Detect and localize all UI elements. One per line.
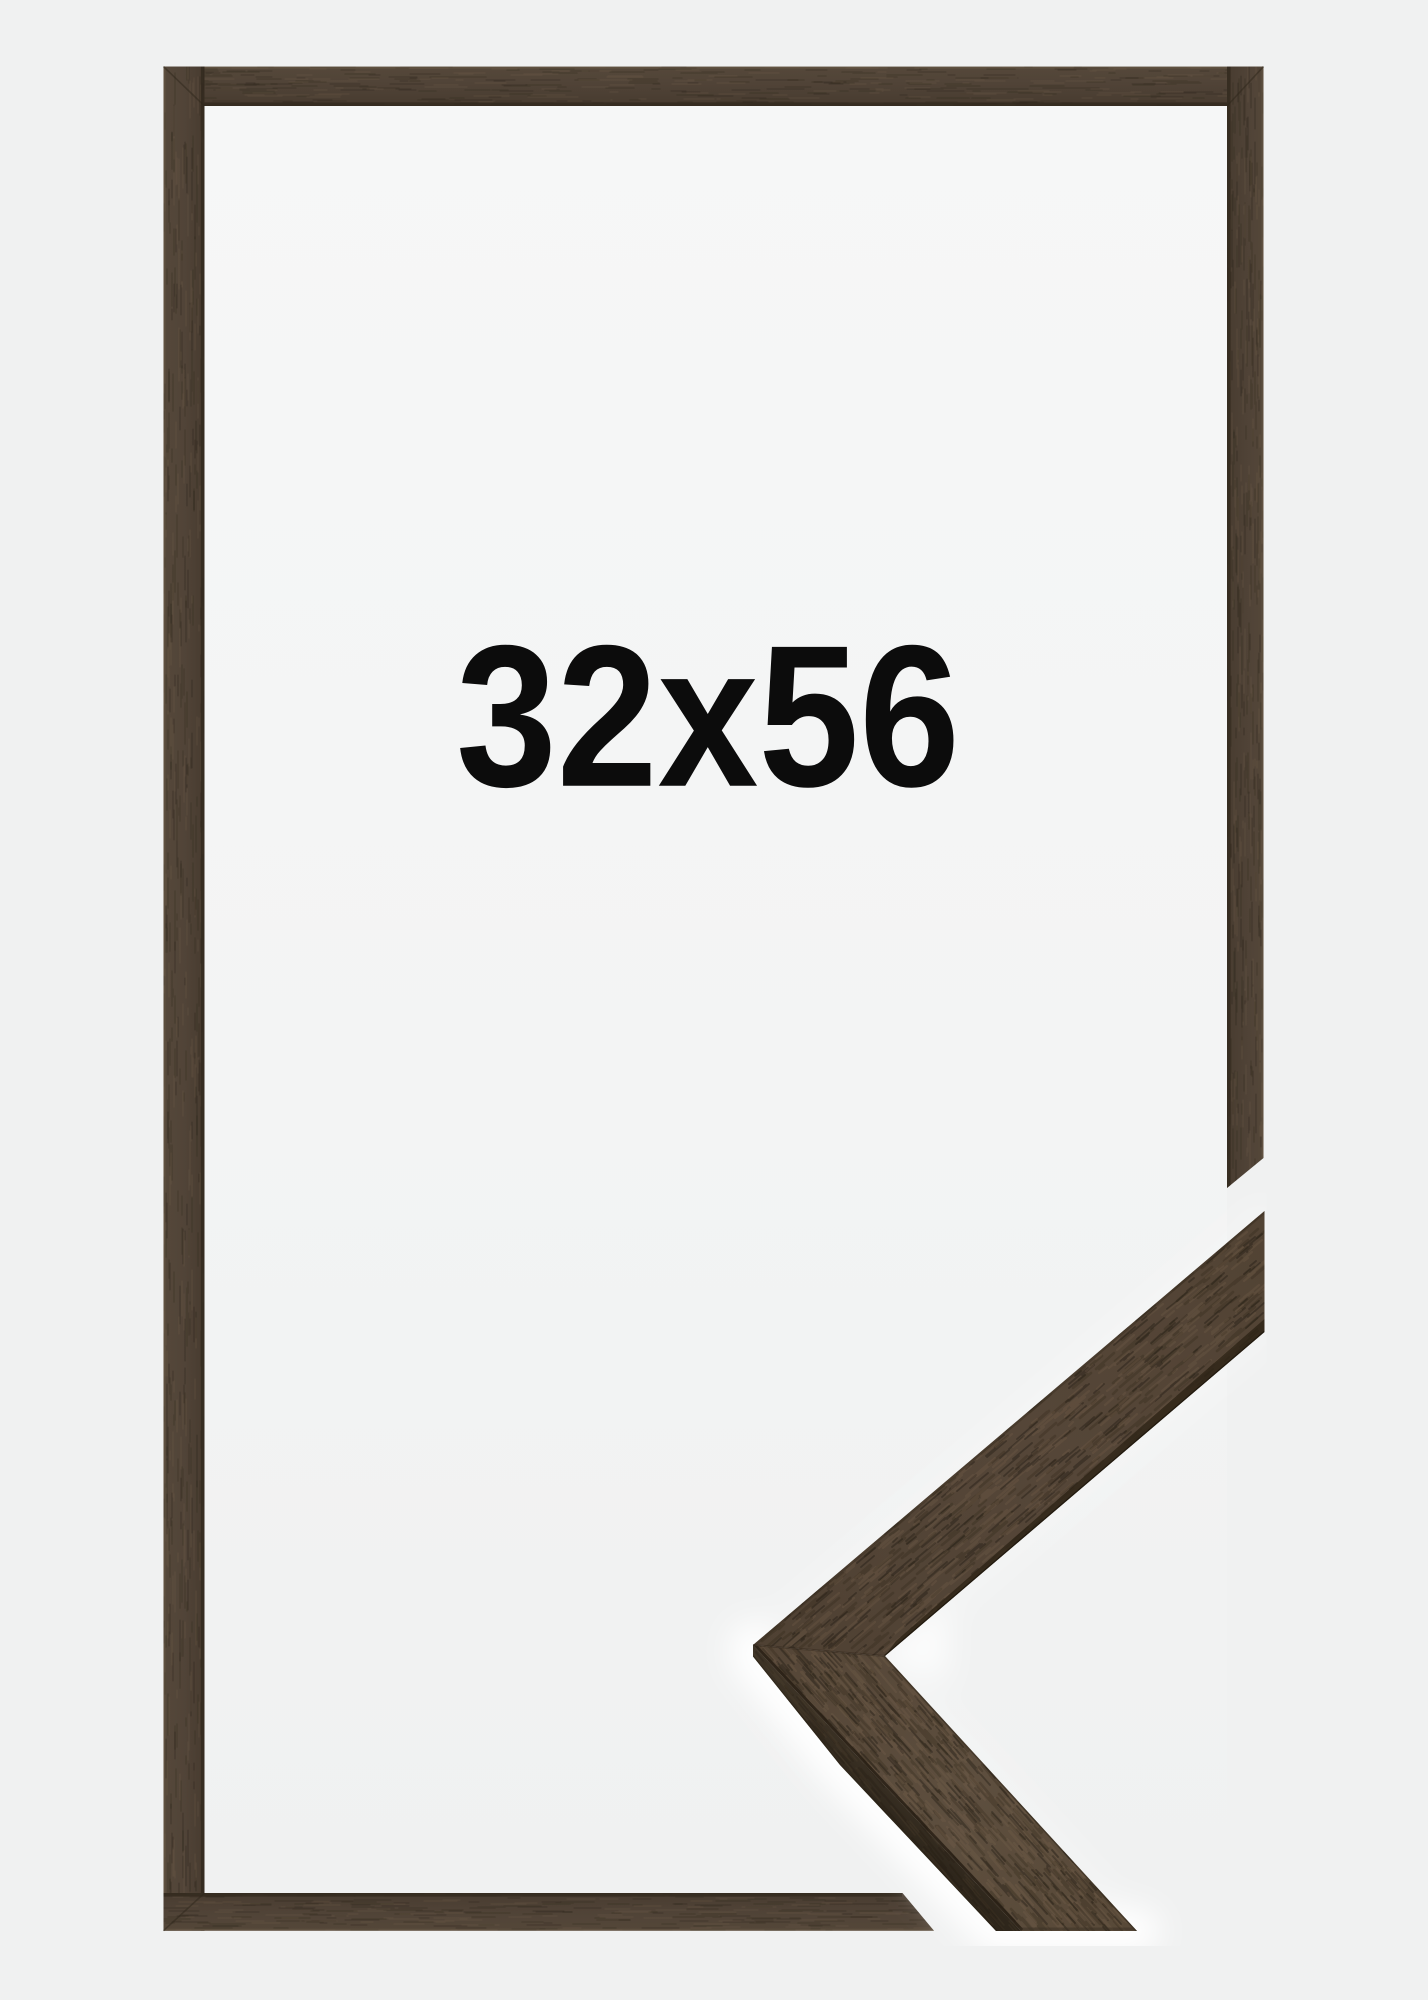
svg-text:32x56: 32x56 [456,603,960,829]
